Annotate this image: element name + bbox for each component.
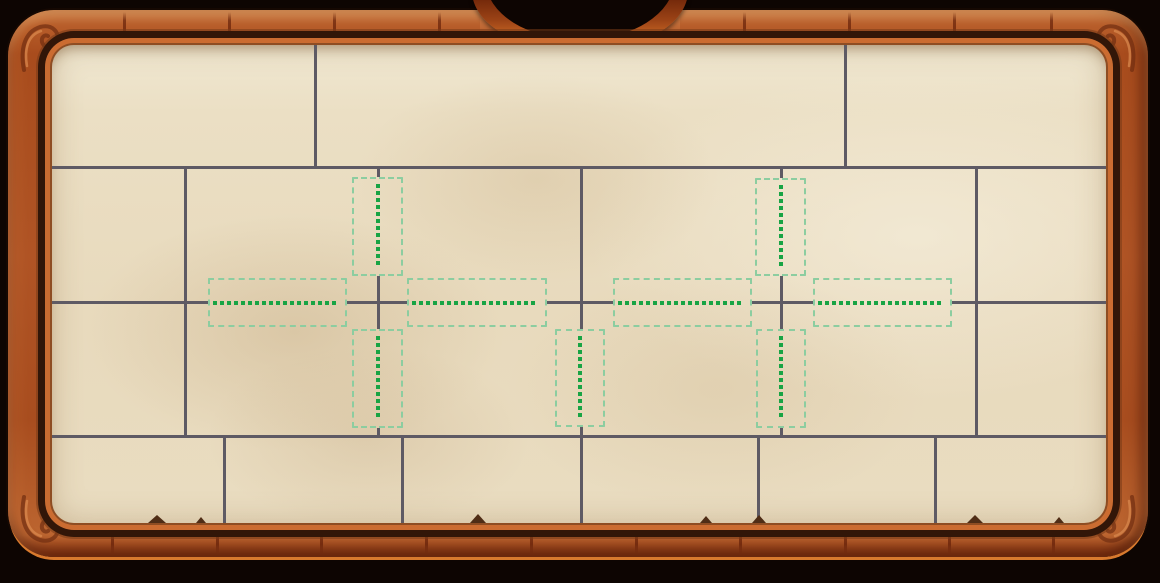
plank-seam — [743, 12, 746, 46]
grid-line — [377, 167, 380, 177]
torn-edge-nick — [700, 516, 712, 523]
grid-line — [401, 436, 404, 523]
torn-edge-nick — [470, 514, 486, 523]
slot-center-dots — [376, 336, 380, 419]
grid-line — [377, 276, 380, 329]
grid-line — [377, 428, 380, 436]
placement-slot[interactable] — [407, 278, 547, 327]
placement-slot[interactable] — [555, 329, 605, 427]
plank-seam — [333, 12, 336, 46]
grid-line — [580, 427, 583, 523]
placement-slot[interactable] — [755, 178, 806, 276]
grid-line — [780, 276, 783, 329]
puzzle-board[interactable] — [52, 45, 1106, 523]
plank-seam — [438, 12, 441, 46]
grid-line — [752, 301, 813, 304]
grid-line — [184, 167, 187, 436]
slot-center-dots — [412, 301, 538, 305]
torn-edge-nick — [148, 515, 166, 523]
torn-edge-nick — [1054, 517, 1064, 523]
slot-center-dots — [818, 301, 943, 305]
slot-center-dots — [779, 185, 783, 267]
placement-slot[interactable] — [756, 329, 806, 428]
grid-line — [934, 436, 937, 523]
plank-seam — [123, 12, 126, 46]
grid-line — [314, 45, 317, 167]
grid-line — [780, 428, 783, 436]
placement-slot[interactable] — [813, 278, 952, 327]
torn-edge-nick — [967, 515, 983, 523]
torn-edge-nick — [752, 515, 766, 523]
placement-slot[interactable] — [208, 278, 347, 327]
grid-line — [780, 167, 783, 178]
slot-center-dots — [779, 336, 783, 419]
placement-slot[interactable] — [352, 329, 403, 428]
grid-line — [844, 45, 847, 167]
game-window — [0, 0, 1160, 583]
plank-seam — [1050, 12, 1053, 46]
torn-edge-nick — [196, 517, 206, 523]
slot-center-dots — [578, 336, 582, 418]
grid-line — [580, 167, 583, 329]
grid-line — [223, 436, 226, 523]
placement-slot[interactable] — [613, 278, 752, 327]
plank-seam — [848, 12, 851, 46]
slot-center-dots — [618, 301, 743, 305]
grid-line — [757, 436, 760, 523]
placement-slot[interactable] — [352, 177, 403, 276]
plank-seam — [228, 12, 231, 46]
plank-seam — [953, 12, 956, 46]
slot-center-dots — [376, 184, 380, 267]
slot-center-dots — [213, 301, 338, 305]
grid-line — [975, 167, 978, 436]
